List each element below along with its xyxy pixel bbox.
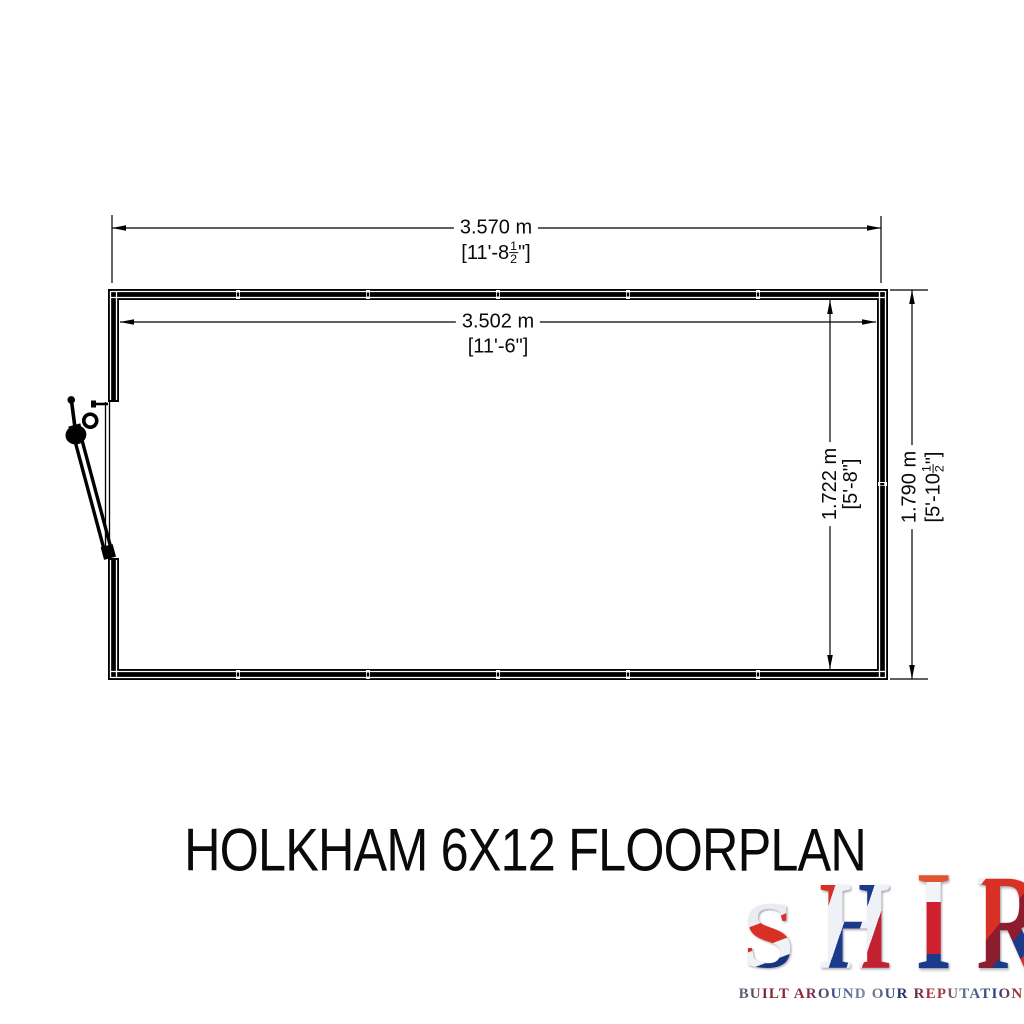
outer-width-imperial-label: [11'-812"] [455, 240, 536, 266]
inner-width-imperial-label: [11'-6"] [462, 337, 535, 358]
outer-depth-label: 1.790 m [5'-1012"] [900, 445, 947, 529]
dimension-lines [112, 215, 928, 679]
page-title: HOLKHAM 6X12 FLOORPLAN [184, 816, 866, 885]
brand-letter-i: I [916, 843, 952, 997]
half-fraction: 12 [921, 464, 947, 473]
door-leaf [56, 391, 132, 561]
wall-panel-joints [236, 290, 887, 679]
brand-letter-h: H [819, 857, 891, 994]
half-fraction: 12 [509, 240, 518, 266]
brand-tagline: BUILT AROUND OUR REPUTATION [738, 986, 1024, 1003]
inner-depth-label: 1.722 m [5'-8"] [820, 442, 862, 526]
brand-letter-s: S [743, 883, 794, 987]
brand-wordmark: S H I R E [742, 886, 1012, 986]
page: { "title": "HOLKHAM 6X12 FLOORPLAN", "di… [0, 0, 1024, 1024]
outer-width-metric-label: 3.570 m [454, 218, 538, 239]
wall-left-lower [108, 558, 119, 680]
door-handle-ring [82, 413, 98, 429]
inner-width-metric-label: 3.502 m [456, 312, 540, 333]
wall-left-upper [108, 289, 119, 402]
brand-letter-r: R [977, 848, 1024, 996]
